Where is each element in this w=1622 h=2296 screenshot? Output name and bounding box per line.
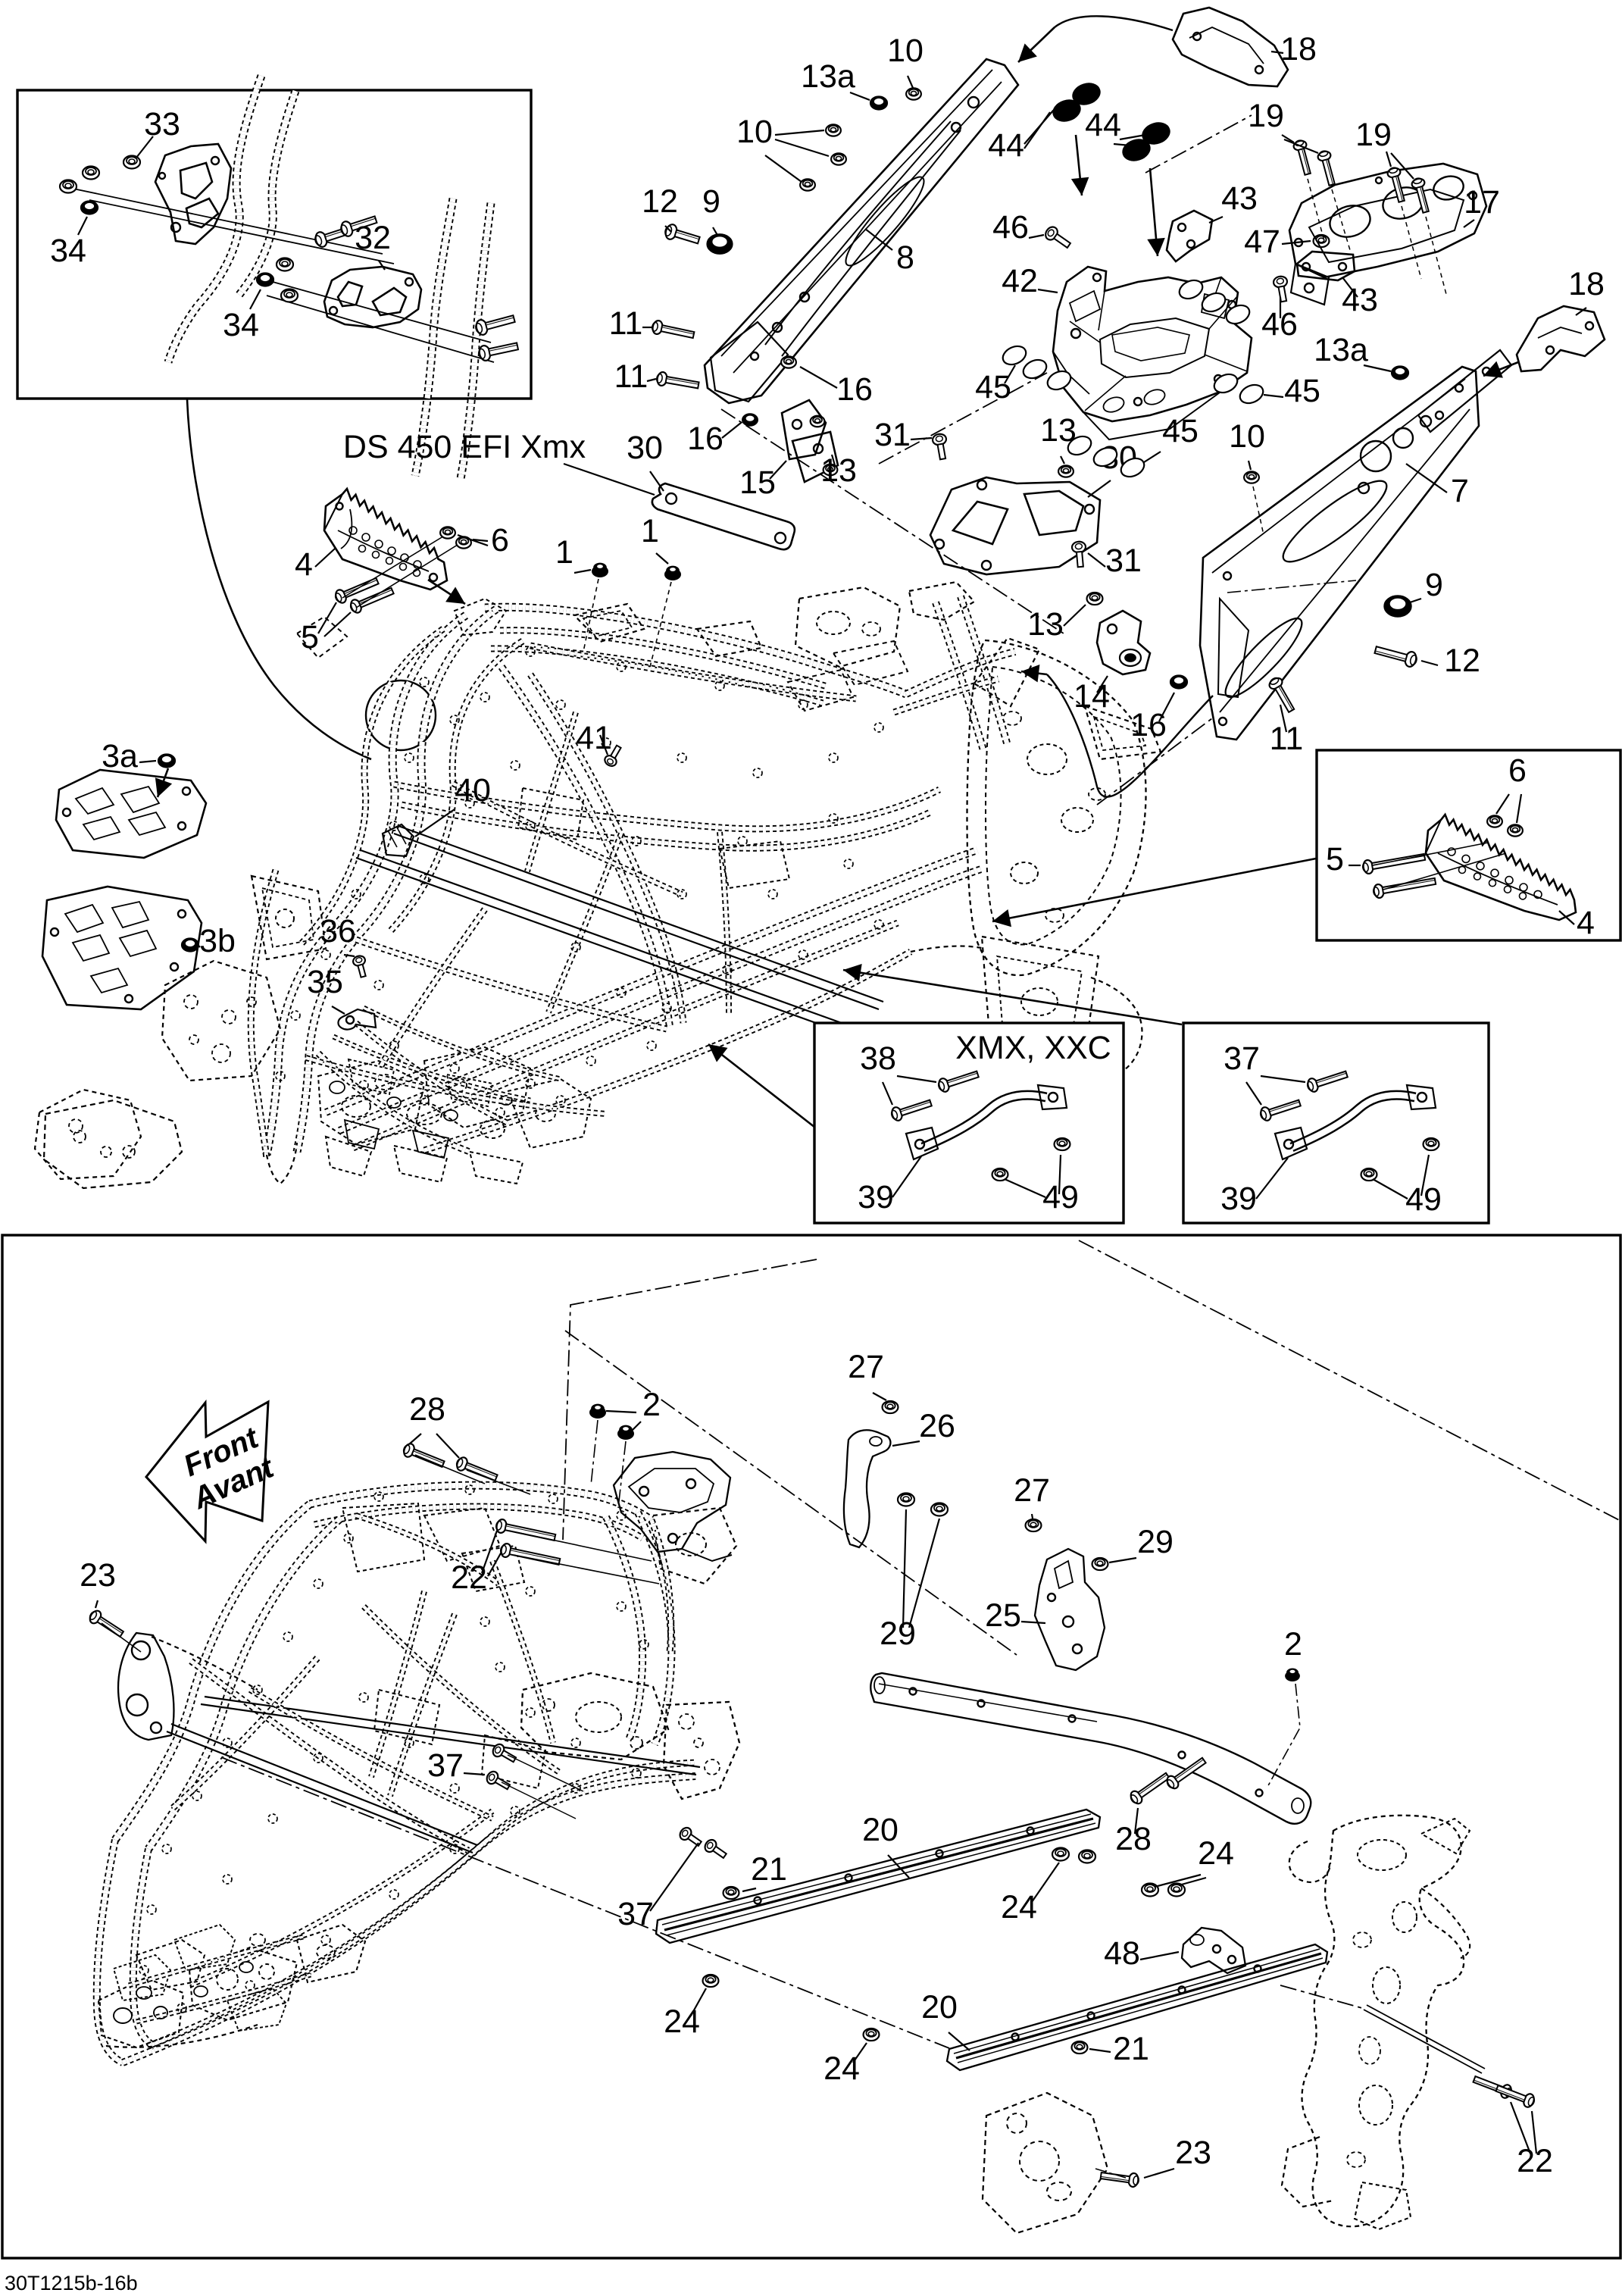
svg-text:8: 8 — [896, 239, 914, 276]
svg-text:48: 48 — [1104, 1935, 1140, 1972]
svg-text:20: 20 — [921, 1989, 958, 2025]
svg-text:21: 21 — [751, 1851, 787, 1888]
svg-text:31: 31 — [1105, 543, 1142, 579]
svg-text:43: 43 — [1342, 282, 1378, 318]
svg-text:28: 28 — [409, 1391, 445, 1428]
svg-text:16: 16 — [836, 371, 873, 408]
svg-text:30: 30 — [627, 430, 663, 466]
svg-text:37: 37 — [617, 1896, 654, 1932]
svg-text:19: 19 — [1355, 117, 1392, 153]
svg-text:27: 27 — [1014, 1472, 1050, 1509]
svg-text:11: 11 — [614, 358, 648, 395]
svg-text:4: 4 — [1577, 905, 1595, 941]
svg-text:19: 19 — [1248, 98, 1284, 134]
svg-text:38: 38 — [860, 1040, 896, 1077]
svg-text:9: 9 — [702, 183, 720, 220]
svg-text:28: 28 — [1115, 1821, 1152, 1857]
svg-text:25: 25 — [985, 1597, 1021, 1634]
svg-text:16: 16 — [687, 421, 723, 457]
svg-text:10: 10 — [887, 33, 924, 69]
svg-text:37: 37 — [427, 1747, 464, 1784]
svg-text:18: 18 — [1280, 31, 1317, 67]
svg-text:33: 33 — [144, 106, 180, 142]
svg-text:43: 43 — [1221, 180, 1258, 217]
svg-text:42: 42 — [1002, 263, 1038, 299]
svg-text:5: 5 — [301, 619, 319, 655]
svg-text:36: 36 — [320, 913, 356, 949]
svg-text:24: 24 — [1001, 1889, 1037, 1925]
svg-text:14: 14 — [1074, 678, 1110, 715]
svg-text:18: 18 — [1568, 266, 1605, 302]
svg-text:37: 37 — [1224, 1040, 1260, 1077]
svg-text:12: 12 — [1444, 643, 1480, 679]
svg-text:13: 13 — [820, 452, 857, 489]
svg-text:22: 22 — [451, 1559, 487, 1596]
svg-text:39: 39 — [1220, 1181, 1257, 1217]
svg-text:2: 2 — [1284, 1626, 1302, 1663]
svg-text:45: 45 — [1284, 373, 1320, 409]
svg-text:16: 16 — [1130, 707, 1167, 743]
svg-text:13a: 13a — [801, 58, 855, 95]
svg-text:23: 23 — [1175, 2135, 1211, 2171]
svg-text:26: 26 — [919, 1408, 955, 1444]
svg-text:47: 47 — [1244, 224, 1280, 260]
svg-text:20: 20 — [862, 1812, 899, 1848]
svg-text:5: 5 — [1326, 841, 1344, 877]
svg-text:24: 24 — [824, 2050, 860, 2087]
svg-text:10: 10 — [736, 114, 773, 150]
svg-text:11: 11 — [1270, 721, 1304, 757]
svg-text:XMX, XXC: XMX, XXC — [955, 1030, 1111, 1066]
svg-text:29: 29 — [1137, 1524, 1174, 1560]
svg-text:1: 1 — [641, 513, 659, 549]
svg-text:3b: 3b — [199, 923, 236, 959]
svg-text:23: 23 — [80, 1557, 116, 1594]
svg-text:22: 22 — [1517, 2143, 1553, 2179]
svg-text:45: 45 — [1162, 413, 1199, 449]
svg-text:12: 12 — [642, 183, 678, 220]
svg-text:45: 45 — [975, 369, 1011, 405]
svg-text:46: 46 — [992, 209, 1029, 246]
svg-text:35: 35 — [307, 964, 343, 1000]
svg-text:44: 44 — [1085, 107, 1121, 143]
svg-text:9: 9 — [1425, 567, 1443, 603]
svg-text:27: 27 — [848, 1349, 884, 1385]
svg-text:40: 40 — [455, 772, 491, 809]
svg-text:13a: 13a — [1314, 332, 1368, 368]
svg-text:44: 44 — [988, 127, 1024, 164]
svg-text:30T1215b-16b: 30T1215b-16b — [5, 2272, 138, 2294]
svg-text:6: 6 — [1508, 752, 1527, 789]
svg-text:11: 11 — [609, 305, 643, 342]
svg-text:15: 15 — [739, 465, 776, 501]
svg-text:3a: 3a — [102, 738, 138, 774]
svg-text:DS 450 EFI Xmx: DS 450 EFI Xmx — [343, 429, 586, 465]
svg-text:13: 13 — [1027, 606, 1064, 643]
svg-text:21: 21 — [1113, 2031, 1149, 2067]
svg-text:2: 2 — [642, 1387, 661, 1423]
svg-text:10: 10 — [1229, 418, 1265, 455]
svg-text:17: 17 — [1464, 184, 1500, 221]
svg-text:49: 49 — [1042, 1179, 1079, 1215]
svg-text:34: 34 — [223, 307, 259, 343]
svg-text:34: 34 — [50, 233, 86, 269]
svg-text:4: 4 — [295, 546, 313, 583]
svg-text:7: 7 — [1451, 473, 1469, 509]
svg-text:31: 31 — [874, 417, 911, 453]
svg-text:39: 39 — [858, 1179, 894, 1215]
svg-text:32: 32 — [355, 220, 391, 256]
svg-text:1: 1 — [555, 534, 573, 571]
svg-text:6: 6 — [491, 522, 509, 558]
svg-text:24: 24 — [1198, 1835, 1234, 1872]
